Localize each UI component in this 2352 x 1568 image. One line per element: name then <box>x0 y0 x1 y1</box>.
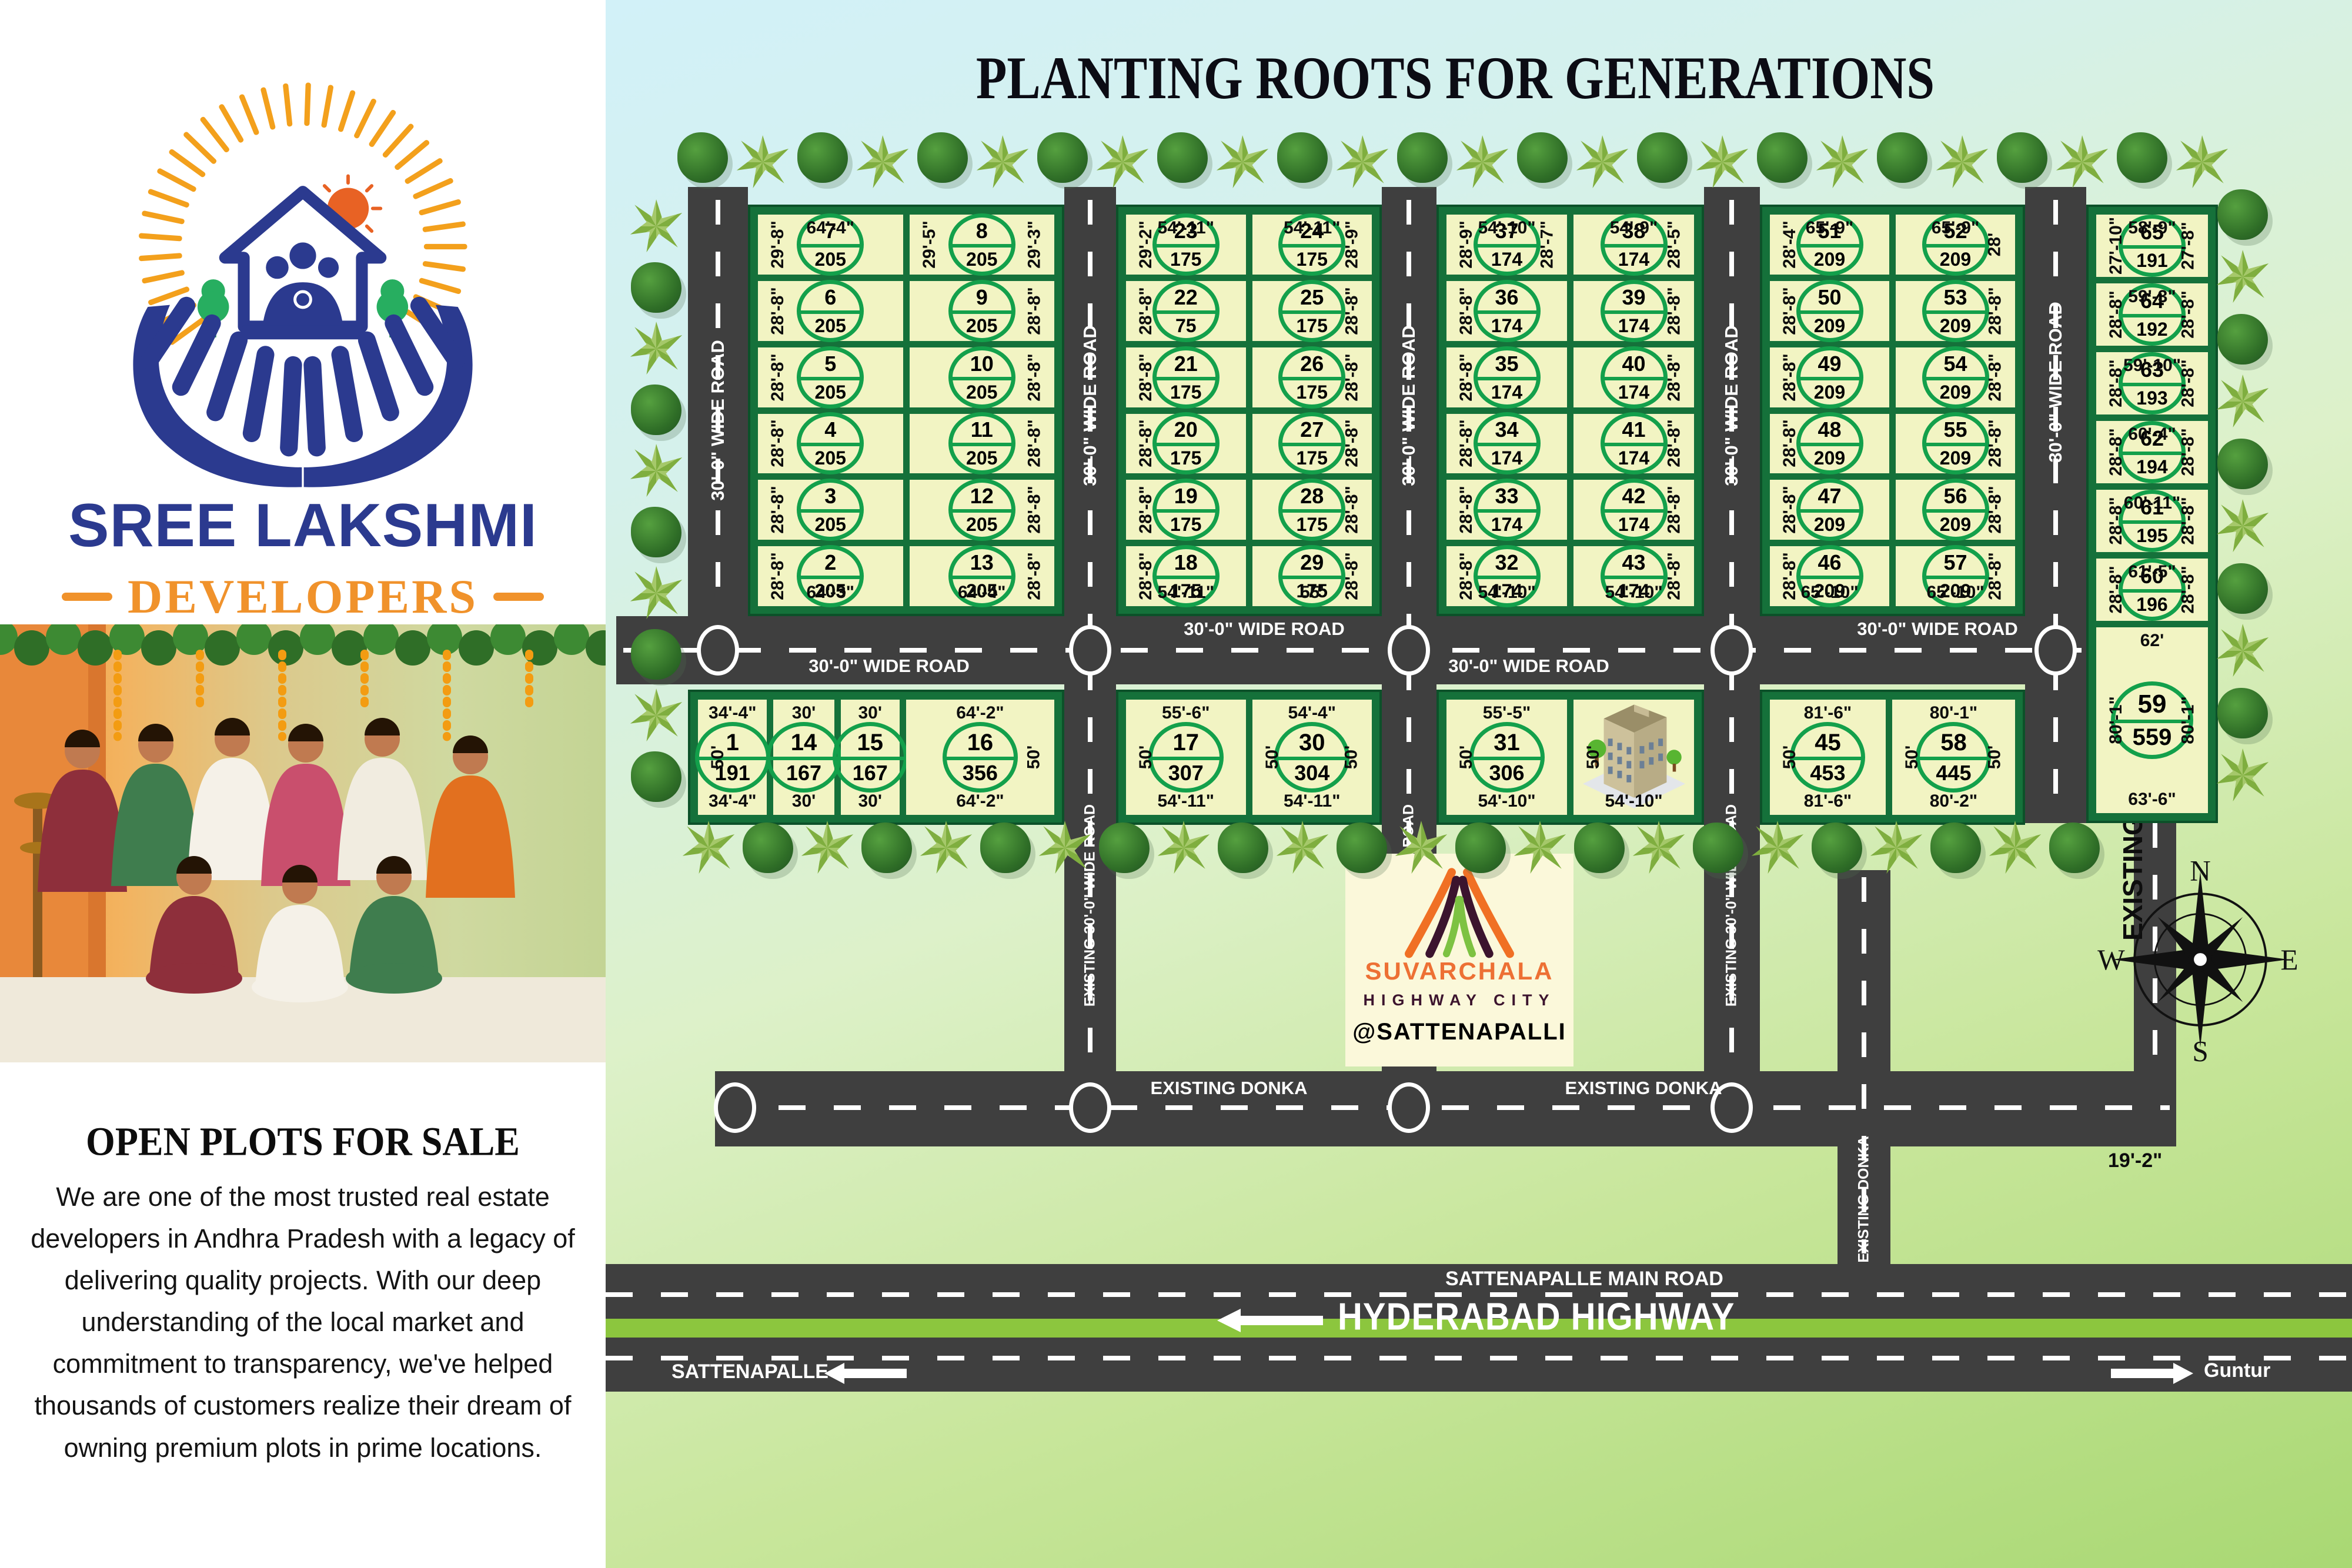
plot-dimension: 34'-4" <box>709 791 756 811</box>
plot-dimension: 28'-8" <box>1136 420 1156 467</box>
compass-w: W <box>2097 944 2125 976</box>
plot-block-b3: 3717454'-10"28'-9"28'-7"3817454'-9"28'-5… <box>1436 205 1704 616</box>
map-title: PLANTING ROOTS FOR GENERATIONS <box>976 42 1935 113</box>
road-label: 30'-0" WIDE ROAD <box>1398 325 1419 486</box>
plot-area: 209 <box>1926 377 1985 402</box>
plot-number: 46 <box>1818 552 1841 576</box>
bush-tree-icon <box>861 823 912 873</box>
plot-dimension: 54'-11" <box>1284 218 1340 238</box>
plot-badge: 25175 <box>1278 280 1345 342</box>
plot-dimension: 50' <box>1902 745 1922 770</box>
plot-45: 4545381'-6"81'-6"50' <box>1770 700 1886 815</box>
plot-number: 5 <box>824 353 836 377</box>
plot-area: 209 <box>1926 509 1985 534</box>
palm-tree-icon <box>2055 135 2109 189</box>
plot-area: 304 <box>1278 757 1345 784</box>
palm-tree-icon <box>1335 135 1389 189</box>
plot-64: 6419259'-3"28'-8"28'-8" <box>2096 283 2208 346</box>
plot-badge: 33174 <box>1474 479 1541 541</box>
plot-17: 1730755'-6"54'-11"50' <box>1126 700 1246 815</box>
palm-tree-icon <box>1935 135 1989 189</box>
plot-area: 174 <box>1605 509 1663 534</box>
plot-32: 3217454'-10"28'-8" <box>1446 546 1567 606</box>
bush-tree-icon <box>1574 823 1625 873</box>
plot-badge: 42174 <box>1601 479 1668 541</box>
plot-block-bD: 4545381'-6"81'-6"50'5844580'-1"80'-2"50'… <box>1760 690 2025 825</box>
plot-26: 2617528'-8" <box>1252 347 1372 407</box>
plot-dimension: 55'-6" <box>1162 703 1210 723</box>
plot-dimension: 54'-4" <box>1288 703 1336 723</box>
plot-dimension: 60'-4" <box>2128 424 2176 444</box>
plot-dimension: 28'-8" <box>2178 566 2198 613</box>
plot-area: 205 <box>953 443 1011 467</box>
plot-dimension: 55' <box>1300 583 1324 603</box>
plot-badge: 2275 <box>1152 280 1220 342</box>
plot-badge: 1191 <box>695 722 770 793</box>
plot-39: 3917428'-8" <box>1573 281 1694 341</box>
compass-n: N <box>2190 854 2211 887</box>
plot-19: 1917528'-8" <box>1126 480 1246 540</box>
plot-dimension: 28' <box>1985 233 2005 257</box>
plot-dimension: 54'-11" <box>1158 791 1214 811</box>
plot-20: 2017528'-8" <box>1126 414 1246 474</box>
palm-tree-icon <box>629 322 683 376</box>
left-arrow-icon <box>1217 1308 1323 1333</box>
plot-dimension: 81'-6" <box>1804 703 1852 723</box>
plot-54: 5420928'-8" <box>1896 347 2015 407</box>
plot-dimension: 28'-8" <box>768 287 788 335</box>
plot-area: 205 <box>953 244 1011 269</box>
plot-number: 48 <box>1818 419 1841 443</box>
plot-dimension: 65'-10" <box>1926 583 1984 603</box>
palm-tree-icon <box>629 444 683 498</box>
plot-area: 209 <box>1926 443 1985 467</box>
plot-dimension: 58'-9" <box>2128 218 2176 238</box>
plot-dimension: 60'-11" <box>2124 493 2180 513</box>
plot-number: 41 <box>1622 419 1645 443</box>
plot-dimension: 28'-8" <box>1136 552 1156 600</box>
palm-tree-icon <box>919 821 973 875</box>
plot-number: 30 <box>1299 731 1325 757</box>
plot-number: 3 <box>824 486 836 509</box>
plot-2: 220564'-3"28'-8" <box>758 546 903 606</box>
plot-block-bB: 1730755'-6"54'-11"50'3030454'-4"54'-11"5… <box>1116 690 1382 825</box>
plot-29: 2917555'28'-8" <box>1252 546 1372 606</box>
plot-dimension: 28'-8" <box>1342 420 1362 467</box>
palm-tree-icon <box>2216 748 2270 803</box>
plot-dimension: 64'-2" <box>956 703 1004 723</box>
palm-tree-icon <box>629 688 683 743</box>
plot-27: 2717528'-8" <box>1252 414 1372 474</box>
bush-tree-icon <box>2049 823 2100 873</box>
plot-13: 1320564'-4"28'-8" <box>910 546 1055 606</box>
plot-number: 42 <box>1622 486 1645 509</box>
plot-area: 174 <box>1478 509 1536 534</box>
plot-badge: 54209 <box>1922 346 1989 409</box>
plot-dimension: 50' <box>1342 745 1362 770</box>
road-centerline <box>606 1356 2352 1360</box>
plot-number: 32 <box>1495 552 1518 576</box>
plot-36: 3617428'-8" <box>1446 281 1567 341</box>
plot-badge: 17307 <box>1148 722 1224 793</box>
palm-tree-icon <box>2216 375 2270 429</box>
plot-dimension: 28'-8" <box>1456 420 1476 467</box>
bush-tree-icon <box>2217 314 2268 365</box>
plot-dimension: 50' <box>1583 745 1603 770</box>
palm-tree-icon <box>1575 135 1629 189</box>
plot-5: 520528'-8" <box>758 347 903 407</box>
bush-tree-icon <box>1337 823 1387 873</box>
plot-dimension: 29'-3" <box>1024 220 1044 268</box>
plot-65: 6519158'-9"27'-10"27'-8" <box>2096 215 2208 277</box>
plot-dimension: 64'-2" <box>956 791 1004 811</box>
plot-number: 10 <box>970 353 994 377</box>
plot-area: 307 <box>1152 757 1220 784</box>
plot-number: 16 <box>967 731 994 757</box>
plot-badge: 35174 <box>1474 346 1541 409</box>
plot-area: 209 <box>1800 509 1859 534</box>
plot-28: 2817528'-8" <box>1252 480 1372 540</box>
highway-label: HYDERABAD HIGHWAY <box>1338 1295 1735 1339</box>
plot-number: 33 <box>1495 486 1518 509</box>
plot-number: 11 <box>971 419 993 443</box>
plot-area: 209 <box>1800 244 1859 269</box>
plot-dimension: 27'-10" <box>2106 217 2126 275</box>
plot-37: 3717454'-10"28'-9"28'-7" <box>1446 215 1567 275</box>
bush-tree-icon <box>2217 688 2268 738</box>
palm-tree-icon <box>1157 821 1211 875</box>
plot-badge: 21175 <box>1152 346 1220 409</box>
plot-23: 2317554'-11"29'-2" <box>1126 215 1246 275</box>
plot-dimension: 28'-8" <box>2178 290 2198 338</box>
palm-tree-icon <box>1869 821 1923 875</box>
plot-area: 445 <box>1920 757 1987 784</box>
sale-paragraph: We are one of the most trusted real esta… <box>18 1176 588 1469</box>
plot-dimension: 30' <box>858 791 882 811</box>
plot-10: 1020528'-8" <box>910 347 1055 407</box>
junction-circle <box>1069 1082 1111 1133</box>
plot-number: 28 <box>1300 486 1324 509</box>
plot-dimension: 28'-8" <box>2178 497 2198 544</box>
plot-area: 205 <box>801 377 860 402</box>
palm-tree-icon <box>975 135 1030 189</box>
bush-tree-icon <box>631 507 681 557</box>
plot-dimension: 28'-8" <box>1456 552 1476 600</box>
plot-number: 40 <box>1622 353 1645 377</box>
plot-16: 1635664'-2"64'-2"50' <box>906 700 1054 815</box>
plot-dimension: 28'-8" <box>1780 353 1800 401</box>
plot-dimension: 28'-8" <box>1985 552 2005 600</box>
plot-area: 209 <box>1926 310 1985 335</box>
plot-area: 191 <box>2123 245 2181 270</box>
plot-badge: 47209 <box>1796 479 1863 541</box>
plot-31: 3130655'-5"54'-10"50' <box>1446 700 1567 815</box>
bush-tree-icon <box>631 385 681 435</box>
bush-tree-icon <box>1812 823 1862 873</box>
palm-tree-icon <box>2216 499 2270 553</box>
palm-tree-icon <box>1215 135 1269 189</box>
road-label: 30'-0" WIDE ROAD <box>2045 302 2066 463</box>
plot-number: 15 <box>857 731 883 757</box>
plot-badge: 12205 <box>948 479 1015 541</box>
plot-21: 2117528'-8" <box>1126 347 1246 407</box>
road-label: 30'-0" WIDE ROAD <box>1080 325 1101 486</box>
plot-number: 53 <box>1943 287 1967 310</box>
plot-56: 5620928'-8" <box>1896 480 2015 540</box>
plot-area: 175 <box>1282 509 1341 534</box>
plot-dimension: 29'-2" <box>1136 220 1156 268</box>
plot-dimension: 28'-8" <box>2106 566 2126 613</box>
plot-area: 194 <box>2123 452 2181 476</box>
plot-block-b4: 5120965'-9"28'-4"5220965'-9"28'5020928'-… <box>1760 205 2025 616</box>
palm-tree-icon <box>736 135 790 189</box>
plot-dimension: 28'-8" <box>2106 428 2126 476</box>
plot-58: 5844580'-1"80'-2"50'50' <box>1892 700 2015 815</box>
plot-63: 6319359'-10"28'-8"28'-8" <box>2096 352 2208 414</box>
bush-tree-icon <box>1637 132 1688 183</box>
plot-dimension: 63'-6" <box>2128 790 2176 810</box>
road-label: 30'-0" WIDE ROAD <box>808 656 970 677</box>
plot-dimension: 54'-10" <box>1605 791 1662 811</box>
bush-tree-icon <box>631 262 681 313</box>
plot-dimension: 50' <box>1780 745 1800 770</box>
plot-dimension: 28'-8" <box>1985 486 2005 534</box>
plot-dimension: 80'-2" <box>1930 791 1977 811</box>
plot-area: 175 <box>1157 443 1215 467</box>
plot-area: 205 <box>801 244 860 269</box>
plot-badge: 53209 <box>1922 280 1989 342</box>
palm-tree-icon <box>1695 135 1749 189</box>
plot-dimension: 30' <box>792 703 816 723</box>
plot-dimension: 28'-8" <box>768 486 788 534</box>
plot-dimension: 55'-5" <box>1483 703 1531 723</box>
plot-area: 174 <box>1605 377 1663 402</box>
plot-number: 22 <box>1174 287 1198 310</box>
bush-tree-icon <box>1877 132 1927 183</box>
plot-dimension: 28'-8" <box>1342 552 1362 600</box>
plot-48: 4820928'-8" <box>1770 414 1889 474</box>
palm-tree-icon <box>629 566 683 620</box>
plot-badge: 9205 <box>948 280 1015 342</box>
plot-dimension: 28'-8" <box>1024 287 1044 335</box>
palm-tree-icon <box>629 199 683 253</box>
plot-34: 3417428'-8" <box>1446 414 1567 474</box>
plot-dimension: 29'-8" <box>768 220 788 268</box>
plot-dimension: 50' <box>1024 745 1044 770</box>
bush-tree-icon <box>917 132 968 183</box>
plot-number: 49 <box>1818 353 1841 377</box>
palm-tree-icon <box>1455 135 1509 189</box>
junction-circle <box>1710 625 1753 676</box>
suvarchala-sub: HIGHWAY CITY <box>1345 991 1573 1009</box>
plot-area: 167 <box>770 757 837 784</box>
compass-rose-icon: N E S W <box>2094 854 2306 1065</box>
developer-logo: SREE LAKSHMI DEVELOPERS Planting Roots f… <box>56 35 550 656</box>
sattenapalle-label: SATTENAPALLE <box>671 1360 828 1383</box>
palm-tree-icon <box>681 821 736 875</box>
plot-area: 205 <box>801 509 860 534</box>
bush-tree-icon <box>1397 132 1448 183</box>
plot-number: 39 <box>1622 287 1645 310</box>
bush-tree-icon <box>1517 132 1568 183</box>
plot-area: 209 <box>1800 310 1859 335</box>
bush-tree-icon <box>1157 132 1208 183</box>
apartment-building-icon <box>1578 679 1690 810</box>
plot-dimension: 61'-5" <box>2128 562 2176 582</box>
plot-40: 4017428'-8" <box>1573 347 1694 407</box>
plot-area: 174 <box>1478 310 1536 335</box>
plot-52: 5220965'-9"28' <box>1896 215 2015 275</box>
plot-area: 175 <box>1157 377 1215 402</box>
palm-tree-icon <box>1275 821 1329 875</box>
plot-area: 209 <box>1926 244 1985 269</box>
plot-area: 175 <box>1282 244 1341 269</box>
road-label: 30'-0" WIDE ROAD <box>707 340 729 501</box>
plot-dimension: 28'-8" <box>1456 486 1476 534</box>
plot-area: 205 <box>953 509 1011 534</box>
road-label: EXISTING DONKA <box>1151 1078 1308 1099</box>
plot-dimension: 54'-10" <box>1605 583 1662 603</box>
plot-dimension: 28'-8" <box>1342 287 1362 335</box>
palm-tree-icon <box>1815 135 1869 189</box>
plot-dimension: 28'-8" <box>1136 353 1156 401</box>
plot-dimension: 28'-8" <box>1456 287 1476 335</box>
plot-9: 920528'-8" <box>910 281 1055 341</box>
plot-badge: 16356 <box>943 722 1018 793</box>
road-centerline <box>623 648 2082 653</box>
plot-dimension: 59'-10" <box>2123 356 2181 376</box>
plot-12: 1220528'-8" <box>910 480 1055 540</box>
plot-dimension: 54'-10" <box>1478 791 1535 811</box>
gap-dimension-label: 19'-2" <box>2108 1149 2162 1172</box>
plot-area: 174 <box>1605 443 1663 467</box>
guntur-label: Guntur <box>2204 1359 2270 1382</box>
plot-dimension: 28'-8" <box>1780 552 1800 600</box>
plot-24: 2417554'-11"28'-9" <box>1252 215 1372 275</box>
plot-badge: 5205 <box>797 346 864 409</box>
plot-dimension: 80'-1" <box>2106 696 2126 744</box>
plot-dimension: 28'-8" <box>1664 486 1684 534</box>
plot-area: 174 <box>1605 244 1663 269</box>
plot-dimension: 50' <box>708 745 728 770</box>
plot-dimension: 54'-11" <box>1158 218 1214 238</box>
plot-number: 9 <box>976 287 988 310</box>
plot-dimension: 28'-8" <box>2106 290 2126 338</box>
plot-number: 21 <box>1174 353 1198 377</box>
plot-18: 1817554'-11"28'-8" <box>1126 546 1246 606</box>
plot-dimension: 65'-10" <box>1800 583 1858 603</box>
plot-46: 4620965'-10"28'-8" <box>1770 546 1889 606</box>
bush-tree-icon <box>2217 563 2268 614</box>
plot-badge: 15167 <box>833 722 908 793</box>
plot-area: 174 <box>1478 443 1536 467</box>
plot-area: 167 <box>837 757 904 784</box>
plot-61: 6119560'-11"28'-8"28'-8" <box>2096 490 2208 552</box>
junction-circle <box>1069 625 1111 676</box>
plot-dimension: 28'-8" <box>2106 497 2126 544</box>
plot-dimension: 30' <box>792 791 816 811</box>
palm-tree-icon <box>2216 624 2270 678</box>
plot-block-b2: 2317554'-11"29'-2"2417554'-11"28'-9"2275… <box>1116 205 1382 616</box>
bush-tree-icon <box>1455 823 1506 873</box>
plot-number: 43 <box>1622 552 1645 576</box>
plot-area: 205 <box>953 377 1011 402</box>
plot-badge: 50209 <box>1796 280 1863 342</box>
plot-number: 36 <box>1495 287 1518 310</box>
plot-area: 209 <box>1800 377 1859 402</box>
plot-area: 306 <box>1474 757 1541 784</box>
plot-dimension: 28'-8" <box>1024 353 1044 401</box>
plot-35: 3517428'-8" <box>1446 347 1567 407</box>
bush-tree-icon <box>631 629 681 680</box>
plot-number: 47 <box>1818 486 1841 509</box>
plot-dimension: 28'-8" <box>768 353 788 401</box>
family-photo <box>0 624 606 1062</box>
plot-15: 1516730'30' <box>841 700 900 815</box>
plot-6: 620528'-8" <box>758 281 903 341</box>
junction-circle <box>1388 1082 1430 1133</box>
plot-area: 453 <box>1794 757 1861 784</box>
plot-dimension: 50' <box>1456 745 1476 770</box>
plot-62: 6219460'-4"28'-8"28'-8" <box>2096 421 2208 483</box>
plot-badge: 14167 <box>766 722 841 793</box>
plot-38: 3817454'-9"28'-5" <box>1573 215 1694 275</box>
plot-badge: 20175 <box>1152 412 1220 474</box>
plot-number: 25 <box>1300 287 1324 310</box>
plot-badge: 27175 <box>1278 412 1345 474</box>
plot-60: 6019661'-5"28'-8"28'-8" <box>2096 559 2208 621</box>
plot-55: 5520928'-8" <box>1896 414 2015 474</box>
plot-area: 356 <box>947 757 1014 784</box>
plot-47: 4720928'-8" <box>1770 480 1889 540</box>
plot-dimension: 50' <box>1262 745 1282 770</box>
plot-area: 193 <box>2123 383 2181 407</box>
suvarchala-location: @SATTENAPALLI <box>1345 1019 1573 1045</box>
plot-area: 196 <box>2123 589 2181 614</box>
plot-area: 175 <box>1282 377 1341 402</box>
plot-dimension: 80'-1" <box>1930 703 1977 723</box>
junction-circle <box>2034 625 2077 676</box>
plot-3: 320528'-8" <box>758 480 903 540</box>
plot-dimension: 28'-8" <box>1985 353 2005 401</box>
suvarchala-card: SUVARCHALA HIGHWAY CITY @SATTENAPALLI <box>1345 854 1573 1066</box>
plot-badge: 48209 <box>1796 412 1863 474</box>
palm-tree-icon <box>1095 135 1150 189</box>
plot-dimension: 28'-8" <box>1342 353 1362 401</box>
layout-map: PLANTING ROOTS FOR GENERATIONS 30'-0" <box>606 0 2352 1568</box>
plot-dimension: 28'-8" <box>768 552 788 600</box>
plot-dimension: 28'-8" <box>2178 428 2198 476</box>
plot-number: 20 <box>1174 419 1198 443</box>
junction-circle <box>697 625 739 676</box>
plot-dimension: 34'-4" <box>709 703 756 723</box>
plot-block-bC: 3130655'-5"54'-10"50' 54'-10"50' <box>1436 690 1704 825</box>
plot-59: 5955962'63'-6"80'-1"80'-1" <box>2096 627 2208 813</box>
bush-tree-icon <box>1693 823 1743 873</box>
sale-heading: OPEN PLOTS FOR SALE <box>0 1118 606 1165</box>
plot-dimension: 28'-8" <box>1780 420 1800 467</box>
plot-dimension: 28'-9" <box>1456 220 1476 268</box>
plot-dimension: 30' <box>858 703 882 723</box>
plot-dimension: 64'-3" <box>807 583 854 603</box>
plot-dimension: 28'-8" <box>1024 486 1044 534</box>
bush-tree-icon <box>1218 823 1268 873</box>
plot-number: 27 <box>1300 419 1324 443</box>
plot-49: 4920928'-8" <box>1770 347 1889 407</box>
road-label: 30'-0" WIDE ROAD <box>1184 618 1345 640</box>
bush-tree-icon <box>797 132 848 183</box>
plot-area: 192 <box>2123 314 2181 339</box>
